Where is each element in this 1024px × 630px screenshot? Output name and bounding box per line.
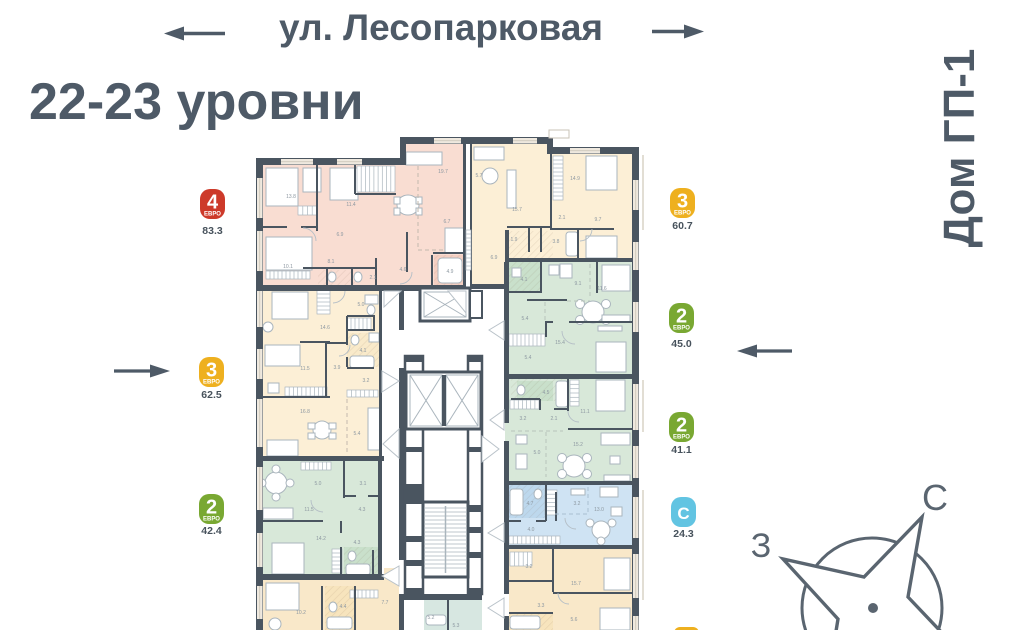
svg-text:24.3: 24.3: [673, 528, 694, 540]
svg-text:3.8: 3.8: [553, 239, 560, 245]
svg-text:5.2: 5.2: [428, 615, 435, 621]
svg-text:2.1: 2.1: [370, 275, 377, 281]
svg-text:ЕВРО: ЕВРО: [673, 435, 690, 441]
svg-text:3.2: 3.2: [574, 501, 581, 507]
svg-text:5.4: 5.4: [525, 355, 532, 361]
svg-text:5.0: 5.0: [315, 481, 322, 487]
svg-text:2: 2: [206, 497, 217, 519]
svg-text:5.4: 5.4: [354, 431, 361, 437]
svg-text:ЕВРО: ЕВРО: [203, 380, 220, 386]
svg-text:4.7: 4.7: [527, 501, 534, 507]
svg-text:13.8: 13.8: [286, 194, 296, 200]
svg-text:4.9: 4.9: [447, 269, 454, 275]
svg-text:3.1: 3.1: [360, 481, 367, 487]
svg-text:4.3: 4.3: [354, 540, 361, 546]
svg-text:7.7: 7.7: [382, 600, 389, 606]
svg-text:4.5: 4.5: [543, 390, 550, 396]
svg-text:42.4: 42.4: [201, 525, 222, 537]
svg-text:3.9: 3.9: [334, 365, 341, 371]
svg-text:15.7: 15.7: [512, 207, 522, 213]
svg-text:41.1: 41.1: [671, 444, 692, 456]
svg-text:3.2: 3.2: [526, 564, 533, 570]
svg-text:9.1: 9.1: [575, 281, 582, 287]
svg-text:11.5: 11.5: [300, 366, 310, 372]
svg-text:16.8: 16.8: [300, 409, 310, 415]
svg-text:ЕВРО: ЕВРО: [203, 517, 220, 523]
svg-text:15.7: 15.7: [571, 581, 581, 587]
svg-text:15.2: 15.2: [573, 442, 583, 448]
svg-text:9.7: 9.7: [595, 217, 602, 223]
svg-text:ЕВРО: ЕВРО: [674, 211, 691, 217]
svg-text:С: С: [922, 477, 948, 518]
svg-text:3.2: 3.2: [520, 416, 527, 422]
svg-text:ЕВРО: ЕВРО: [204, 212, 221, 218]
svg-text:83.3: 83.3: [202, 225, 223, 237]
svg-text:4.1: 4.1: [521, 277, 528, 283]
svg-text:10.2: 10.2: [296, 610, 306, 616]
svg-text:4.1: 4.1: [360, 348, 367, 354]
svg-text:2.1: 2.1: [551, 416, 558, 422]
svg-text:3.3: 3.3: [538, 603, 545, 609]
svg-text:ул. Лесопарковая: ул. Лесопарковая: [279, 7, 603, 48]
svg-text:11.1: 11.1: [580, 409, 590, 415]
svg-text:4: 4: [207, 192, 219, 214]
svg-text:5.0: 5.0: [534, 450, 541, 456]
svg-text:45.0: 45.0: [671, 338, 692, 350]
svg-text:11.4: 11.4: [346, 202, 356, 208]
svg-text:60.7: 60.7: [672, 220, 693, 232]
svg-text:4.0: 4.0: [528, 527, 535, 533]
svg-text:2.1: 2.1: [559, 215, 566, 221]
svg-text:3: 3: [206, 360, 217, 382]
svg-text:ЕВРО: ЕВРО: [673, 326, 690, 332]
svg-text:15.4: 15.4: [555, 340, 565, 346]
svg-text:5.0: 5.0: [358, 302, 365, 308]
svg-text:14.9: 14.9: [570, 176, 580, 182]
svg-text:4.4: 4.4: [340, 604, 347, 610]
svg-text:11.5: 11.5: [304, 507, 314, 513]
svg-text:4.6: 4.6: [400, 267, 407, 273]
svg-text:5.4: 5.4: [522, 316, 529, 322]
svg-text:3.2: 3.2: [363, 378, 370, 384]
svg-text:6.9: 6.9: [491, 255, 498, 261]
svg-text:10.1: 10.1: [283, 264, 293, 270]
svg-text:19.7: 19.7: [438, 169, 448, 175]
svg-text:6.9: 6.9: [337, 232, 344, 238]
svg-text:5.3: 5.3: [453, 623, 460, 629]
svg-text:З: З: [751, 527, 772, 565]
svg-text:2: 2: [676, 415, 687, 437]
svg-text:5.6: 5.6: [571, 617, 578, 623]
svg-text:22-23 уровни: 22-23 уровни: [29, 73, 364, 131]
svg-text:5.7: 5.7: [476, 173, 483, 179]
svg-text:62.5: 62.5: [201, 389, 222, 401]
svg-text:2: 2: [676, 306, 687, 328]
svg-text:11.6: 11.6: [597, 286, 607, 292]
svg-text:8.1: 8.1: [328, 259, 335, 265]
svg-text:6.7: 6.7: [444, 219, 451, 225]
svg-text:Дом ГП-1: Дом ГП-1: [935, 49, 984, 248]
svg-text:13.0: 13.0: [594, 507, 604, 513]
svg-text:14.2: 14.2: [316, 536, 326, 542]
svg-text:С: С: [677, 504, 689, 523]
svg-text:14.6: 14.6: [320, 325, 330, 331]
svg-text:4.3: 4.3: [359, 507, 366, 513]
svg-text:3: 3: [677, 191, 688, 213]
svg-text:1.9: 1.9: [511, 237, 518, 243]
